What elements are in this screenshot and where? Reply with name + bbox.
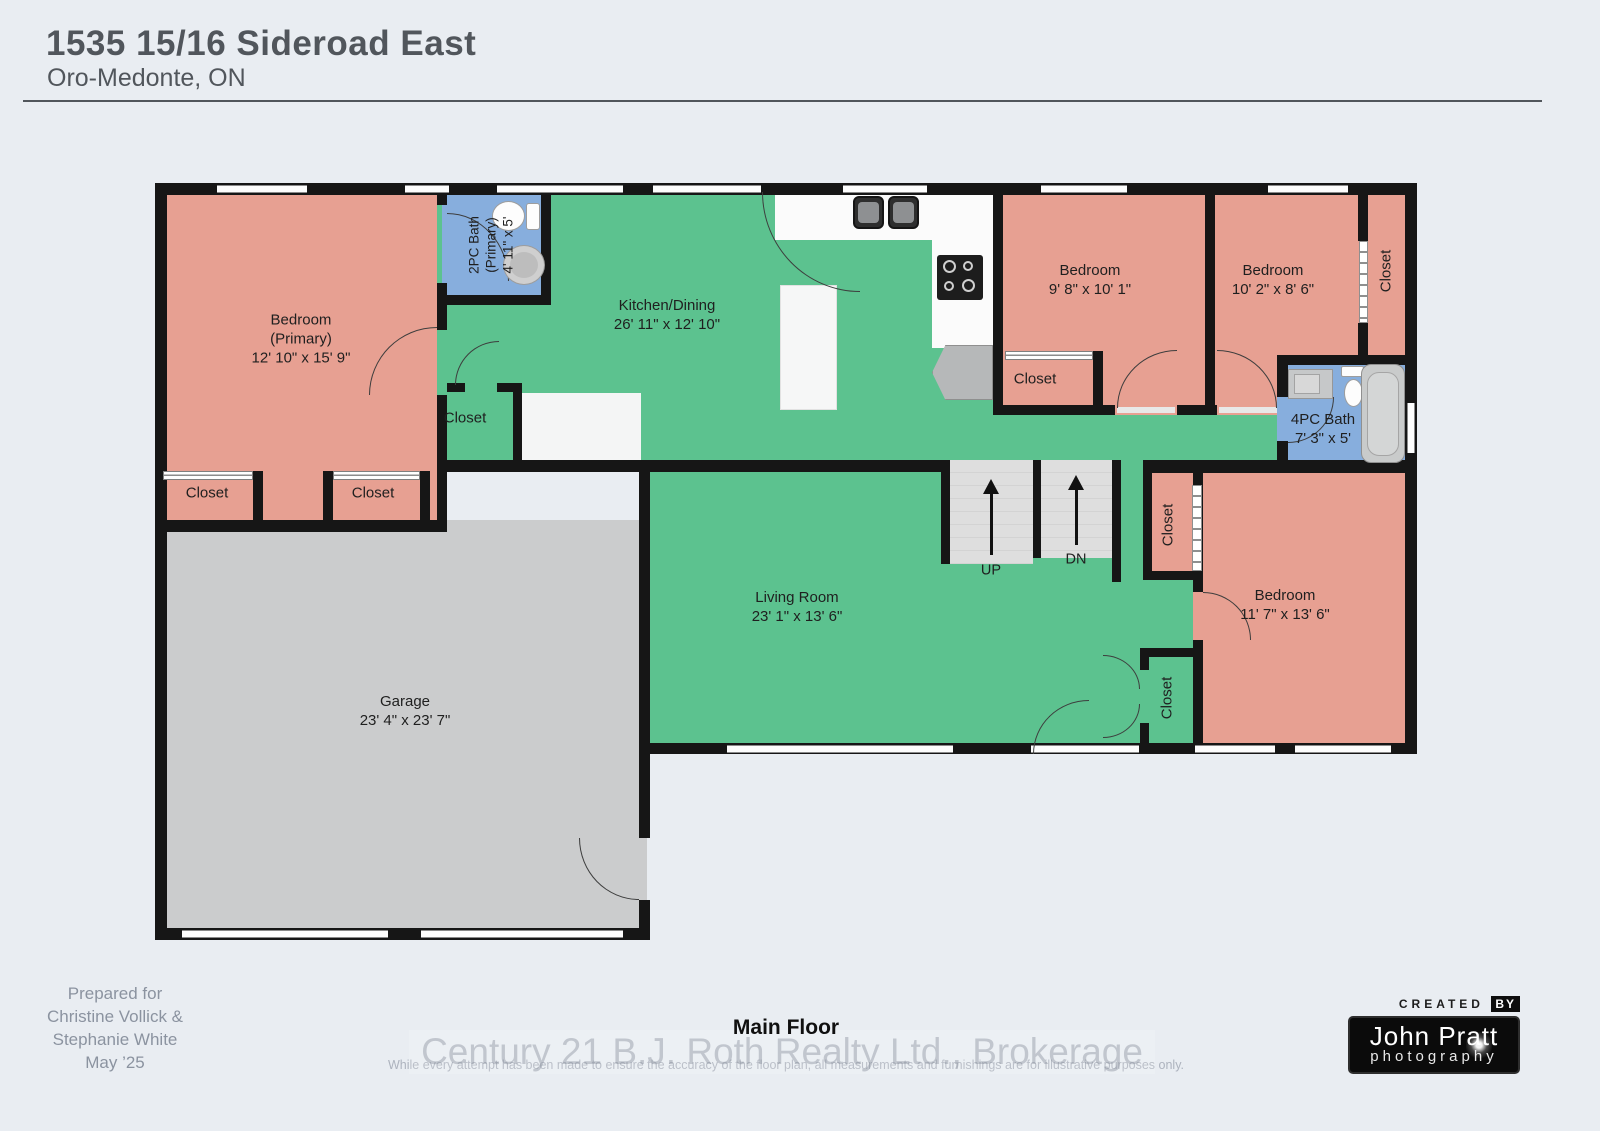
room-label-main-bath: 4PC Bath 7' 3" x 5' [1291,410,1355,448]
window [1268,185,1348,193]
window [1295,745,1391,753]
window [1041,185,1127,193]
sliding-closet-door [163,471,253,480]
room-label-living: Living Room 23' 1" x 13' 6" [752,588,843,626]
burner-icon [944,281,954,291]
bathtub-basin-icon [1367,372,1399,456]
wall-segment [1358,183,1368,241]
window [217,185,307,193]
closet-label: Closet [352,484,395,503]
sliding-closet-door [1005,351,1093,360]
room-label-bedroom-2: Bedroom 9' 8" x 10' 1" [1049,261,1131,299]
burner-icon [943,260,956,273]
window [727,745,953,753]
wall-segment [993,183,1003,413]
wall-segment [1033,460,1041,558]
window [653,185,761,193]
prepared-line: Stephanie White [20,1028,210,1051]
wall-segment [1140,648,1149,670]
up-arrowhead-icon [983,479,999,494]
wall-segment [649,460,950,472]
room-label-bedroom-3: Bedroom 10' 2" x 8' 6" [1232,261,1314,299]
closet-label: Closet [186,484,229,503]
up-arrow-icon [990,493,993,555]
wall-segment [993,405,1115,415]
garage-door [421,930,623,938]
prepared-line: Christine Vollick & [20,1005,210,1028]
closet-label: Closet [1160,504,1177,547]
prepared-line: Prepared for [20,982,210,1005]
room-label-primary-bedroom: Bedroom (Primary) 12' 10" x 15' 9" [252,311,351,368]
wall-segment [1112,460,1121,582]
page-subtitle: Oro-Medonte, ON [47,64,246,93]
sink-basin-icon [893,202,914,223]
closet-label: Closet [444,409,487,428]
wall-segment [1145,648,1193,657]
wall-segment [1093,351,1103,413]
page: { "header": { "title": "1535 15/16 Sider… [0,0,1600,1131]
bifold-closet-door [1192,485,1202,571]
wall-segment [1143,571,1193,580]
wall-segment [1143,473,1152,579]
room-label-kitchen: Kitchen/Dining 26' 11" x 12' 10" [614,296,720,334]
wall-segment [1277,441,1288,472]
prepared-line: May ’25 [20,1051,210,1074]
wall-segment [497,383,513,392]
lens-flare-icon [1466,1032,1492,1058]
window [1407,403,1415,453]
wall-segment [1193,640,1203,754]
wall-segment [941,460,950,564]
utility-nook [513,393,641,462]
logo-box: John Pratt photography [1348,1016,1520,1074]
floor-plan: Bedroom (Primary) 12' 10" x 15' 9" 2PC B… [155,183,1417,940]
wall-segment [513,383,522,469]
wall-segment [639,460,650,838]
page-title: 1535 15/16 Sideroad East [46,24,476,64]
wall-segment [323,471,333,520]
logo-created-text: CREATED [1399,997,1484,1011]
stairs-up-label: UP [981,562,1001,581]
room-label-bedroom-4: Bedroom 11' 7" x 13' 6" [1240,586,1330,624]
wall-segment [1140,723,1149,754]
bifold-closet-door [1359,241,1368,323]
wall-segment [437,295,551,305]
closet-label: Closet [1014,370,1057,389]
header-divider [23,100,1542,102]
sink-basin-icon [858,202,879,223]
dn-arrow-icon [1075,489,1078,545]
wall-segment [155,520,447,532]
logo-by-chip: BY [1491,996,1520,1012]
wall-segment [253,471,263,520]
prepared-for-block: Prepared for Christine Vollick & Stephan… [20,982,210,1074]
wall-segment [1205,183,1215,415]
logo-created-by: CREATED BY [1332,997,1520,1014]
sink-basin-icon [1294,374,1320,394]
logo-word: photography [1350,1048,1518,1065]
burner-icon [963,261,973,271]
photography-logo: CREATED BY John Pratt photography [1332,997,1520,1074]
garage-door [182,930,388,938]
room-label-garage: Garage 23' 4" x 23' 7" [360,692,451,730]
window [497,185,623,193]
wall-segment [639,900,650,940]
room-label-primary-bath: 2PC Bath (Primary) 4' 11" x 5' [466,216,517,274]
wall-segment [541,183,551,303]
floor-name-label: Main Floor [733,1016,839,1040]
burner-icon [962,279,975,292]
wall-segment [437,460,649,472]
kitchen-island [780,285,837,410]
wall-segment [1277,355,1288,397]
closet-label: Closet [1159,677,1176,720]
stairs-down-label: DN [1066,551,1087,570]
window [405,185,449,193]
wall-segment [155,183,167,940]
window [1195,745,1275,753]
wall-segment [437,283,447,330]
toilet-tank-icon [526,203,540,230]
wall-segment [420,471,430,520]
dn-arrowhead-icon [1068,475,1084,490]
room-garage [155,520,647,940]
sliding-closet-door [333,471,420,480]
closet-label: Closet [1378,250,1395,293]
